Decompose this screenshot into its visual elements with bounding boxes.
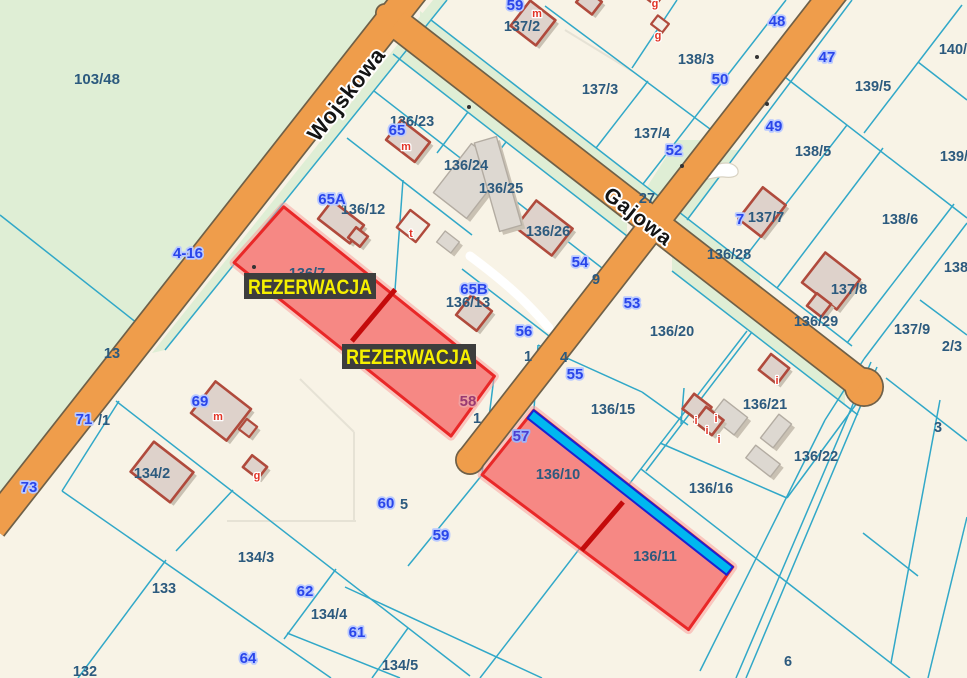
svg-text:136/24: 136/24 [444,158,488,174]
svg-text:61: 61 [349,624,366,641]
svg-text:REZERWACJA: REZERWACJA [248,275,372,299]
svg-text:138/5: 138/5 [795,144,831,160]
svg-text:/1: /1 [98,413,110,429]
svg-text:56: 56 [516,323,533,340]
svg-text:133: 133 [152,581,176,597]
svg-text:134/5: 134/5 [382,658,418,674]
svg-text:6: 6 [784,654,792,670]
svg-text:1: 1 [524,349,532,365]
svg-text:140/1: 140/1 [939,42,967,58]
svg-text:136/10: 136/10 [536,467,580,483]
svg-text:137/3: 137/3 [582,82,618,98]
svg-text:136/12: 136/12 [341,202,385,218]
svg-text:7: 7 [736,211,744,228]
svg-text:65B: 65B [460,281,488,298]
svg-text:138/6: 138/6 [882,212,918,228]
svg-text:60: 60 [378,495,395,512]
svg-text:52: 52 [666,142,683,159]
svg-text:73: 73 [21,479,38,496]
svg-text:53: 53 [624,295,641,312]
svg-text:65: 65 [389,122,406,139]
svg-text:5: 5 [400,497,408,513]
svg-text:i: i [714,413,717,425]
svg-text:136/21: 136/21 [743,397,787,413]
svg-text:58: 58 [460,393,477,410]
svg-text:4-16: 4-16 [173,245,203,262]
svg-text:136/29: 136/29 [794,314,838,330]
svg-text:136/11: 136/11 [633,549,677,565]
svg-text:t: t [409,228,413,240]
svg-text:62: 62 [297,583,314,600]
svg-text:49: 49 [766,118,783,135]
svg-text:134/3: 134/3 [238,550,274,566]
svg-text:136/15: 136/15 [591,402,635,418]
svg-text:m: m [401,141,411,153]
svg-text:137/9: 137/9 [894,322,930,338]
svg-text:136/22: 136/22 [794,449,838,465]
svg-text:50: 50 [712,71,729,88]
svg-text:57: 57 [513,428,530,445]
svg-text:48: 48 [769,13,786,30]
svg-text:103/48: 103/48 [74,71,120,88]
svg-text:64: 64 [240,650,257,667]
svg-text:139/6: 139/6 [940,149,967,165]
svg-text:13: 13 [104,346,120,362]
svg-text:9: 9 [592,272,600,288]
svg-text:136/25: 136/25 [479,181,523,197]
svg-text:1: 1 [473,411,481,427]
svg-text:138/3: 138/3 [678,52,714,68]
svg-text:134/4: 134/4 [311,607,347,623]
svg-text:136/28: 136/28 [707,247,751,263]
svg-text:71: 71 [76,411,93,428]
svg-text:i: i [717,434,720,446]
svg-text:g: g [652,0,659,10]
svg-text:134/2: 134/2 [134,466,170,482]
svg-text:59: 59 [507,0,524,14]
svg-text:139/5: 139/5 [855,79,891,95]
svg-text:69: 69 [192,393,209,410]
svg-text:i: i [775,375,778,387]
svg-text:55: 55 [567,366,584,383]
svg-text:137/7: 137/7 [748,210,784,226]
svg-text:136/20: 136/20 [650,324,694,340]
svg-text:54: 54 [572,254,589,271]
svg-text:m: m [532,8,542,20]
svg-text:132: 132 [73,664,97,678]
svg-text:4: 4 [560,350,568,366]
svg-text:i: i [705,425,708,437]
svg-text:138/7: 138/7 [944,260,967,276]
svg-text:59: 59 [433,527,450,544]
svg-text:i: i [694,415,697,427]
svg-text:137/4: 137/4 [634,126,670,142]
svg-text:137/8: 137/8 [831,282,867,298]
svg-text:2/3: 2/3 [942,339,962,355]
svg-text:137/2: 137/2 [504,19,540,35]
svg-text:REZERWACJA: REZERWACJA [346,345,472,369]
svg-text:136/16: 136/16 [689,481,733,497]
svg-text:m: m [213,411,223,423]
svg-text:136/26: 136/26 [526,224,570,240]
svg-text:47: 47 [819,49,836,66]
svg-text:65A: 65A [318,191,346,208]
svg-text:g: g [254,470,261,482]
svg-text:g: g [655,30,662,42]
svg-text:3: 3 [934,420,942,436]
